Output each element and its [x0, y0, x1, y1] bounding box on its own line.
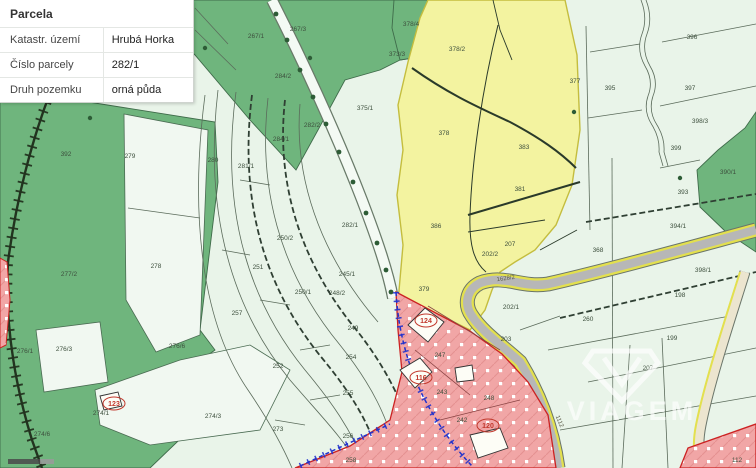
- parcel-label: 260: [583, 316, 594, 323]
- info-label: Číslo parcely: [0, 53, 103, 78]
- parcel-label: 243: [437, 389, 448, 396]
- parcel-label: 258: [346, 457, 357, 464]
- parcel-label: 248/2: [329, 290, 346, 297]
- cadastral-map-viewport[interactable]: 392279278277/2276/1276/3276/6274/1274/61…: [0, 0, 756, 468]
- parcel-label: 112: [732, 457, 743, 464]
- house-number-label: 120: [482, 423, 494, 430]
- parcel-label: 379: [419, 286, 430, 293]
- parcel-label: 393: [678, 189, 689, 196]
- parcel-label: 267/1: [248, 33, 265, 40]
- parcel-label: 375/1: [357, 105, 374, 112]
- info-label: Katastr. území: [0, 28, 103, 53]
- parcel-label: 273: [273, 426, 284, 433]
- parcel-label: 198: [675, 292, 686, 299]
- parcel-label: 255: [343, 390, 354, 397]
- info-value: Hrubá Horka: [103, 28, 193, 53]
- house-number-label: 123: [108, 401, 120, 408]
- parcel-label: 252: [273, 363, 284, 370]
- parcel-label: 396: [687, 34, 698, 41]
- parcel-label: 282/1: [342, 222, 359, 229]
- house-number-label: 124: [420, 318, 432, 325]
- parcel-label: 378: [439, 130, 450, 137]
- parcel-label: 274/6: [34, 431, 51, 438]
- parcel-label: 281/1: [238, 163, 255, 170]
- parcel-label: 276/6: [169, 343, 186, 350]
- parcel-label: 279: [125, 153, 136, 160]
- parcel-label: 386: [431, 223, 442, 230]
- parcel-label: 394/1: [670, 223, 687, 230]
- parcel-label: 274/1: [93, 410, 110, 417]
- parcel-label: 242: [457, 417, 468, 424]
- parcel-label: 250/1: [295, 289, 312, 296]
- parcel-label: 249: [348, 325, 359, 332]
- parcel-label: 399: [671, 145, 682, 152]
- parcel-label: 254: [346, 354, 357, 361]
- parcel-label: 247: [435, 352, 446, 359]
- parcel-label: 373/3: [389, 51, 406, 58]
- parcel-label: 381: [515, 186, 526, 193]
- scale-bar: [8, 459, 54, 464]
- parcel-label: 280: [208, 157, 219, 164]
- parcel-label: 282/2: [304, 122, 321, 129]
- parcel-label: 392: [61, 151, 72, 158]
- parcel-label: 398/3: [692, 118, 709, 125]
- parcel-label: 250/2: [277, 235, 294, 242]
- parcel-label: 377: [570, 78, 581, 85]
- parcel-label: 398/1: [695, 267, 712, 274]
- parcel-label: 278: [151, 263, 162, 270]
- parcel-label: 267/3: [290, 26, 307, 33]
- parcel-label: 378/4: [403, 21, 420, 28]
- parcel-info-table: Katastr. území Hrubá Horka Číslo parcely…: [0, 27, 193, 102]
- parcel-label: 257: [232, 310, 243, 317]
- parcel-label: 368: [593, 247, 604, 254]
- parcel-label: 378/2: [449, 46, 466, 53]
- parcel-label: 251: [253, 264, 264, 271]
- parcel-label: 397: [685, 85, 696, 92]
- parcel-info-panel: Parcela Katastr. území Hrubá Horka Číslo…: [0, 0, 194, 103]
- info-row: Katastr. území Hrubá Horka: [0, 28, 193, 53]
- info-value: 282/1: [103, 53, 193, 78]
- info-row: Číslo parcely 282/1: [0, 53, 193, 78]
- info-label: Druh pozemku: [0, 78, 103, 103]
- parcel-label: 276/3: [56, 346, 73, 353]
- parcel-label: 277/2: [61, 271, 78, 278]
- parcel-label: 284/1: [273, 136, 290, 143]
- parcel-label: 245/1: [339, 271, 356, 278]
- info-value: orná půda: [103, 78, 193, 103]
- parcel-label: 276/1: [17, 348, 34, 355]
- parcel-label: 199: [667, 335, 678, 342]
- parcel-label: 395: [605, 85, 616, 92]
- parcel-label: 284/2: [275, 73, 292, 80]
- info-row: Druh pozemku orná půda: [0, 78, 193, 103]
- house-number-label: 116: [415, 375, 426, 382]
- panel-title: Parcela: [0, 0, 193, 27]
- parcel-label: 274/3: [205, 413, 222, 420]
- parcel-label: 256: [343, 433, 354, 440]
- parcel-label: 207: [505, 241, 516, 248]
- parcel-label: 383: [519, 144, 530, 151]
- parcel-label: 202/1: [503, 304, 520, 311]
- parcel-label: 202/2: [482, 251, 499, 258]
- parcel-label: 390/1: [720, 169, 737, 176]
- parcel-label: 248: [484, 395, 495, 402]
- parcel-label: 203: [501, 336, 512, 343]
